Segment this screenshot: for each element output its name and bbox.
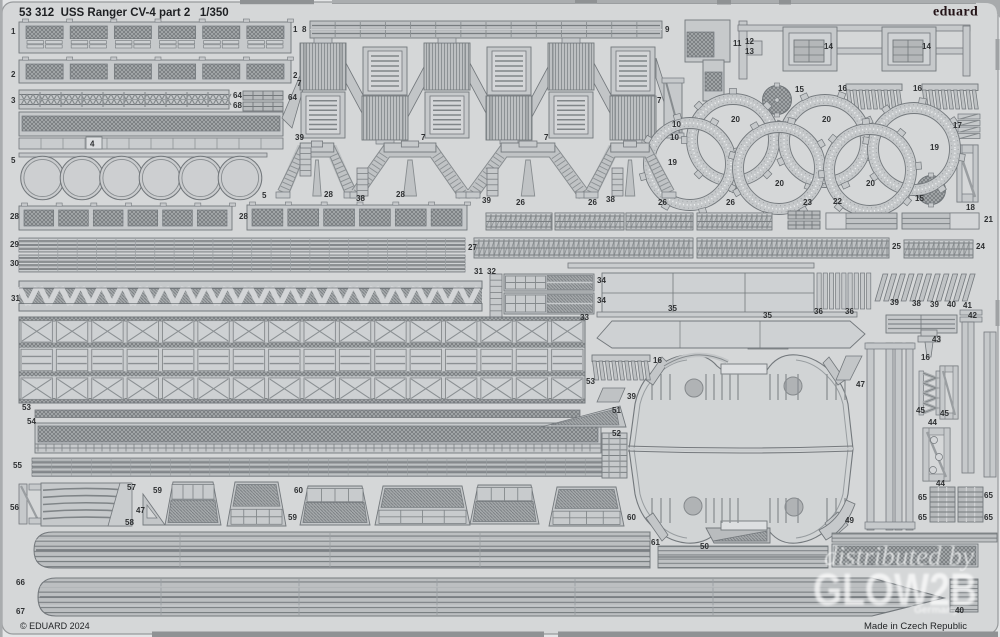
svg-text:36: 36 [845,307,854,316]
svg-text:10: 10 [670,133,679,142]
svg-text:19: 19 [930,143,939,152]
svg-text:53 312 USS Ranger CV-4 part 2: 53 312 USS Ranger CV-4 part 2 1/350 [19,7,229,19]
svg-text:59: 59 [153,486,162,495]
svg-text:47: 47 [136,506,145,515]
svg-text:56: 56 [10,503,19,512]
svg-text:39: 39 [627,392,636,401]
svg-text:42: 42 [968,311,977,320]
svg-text:28: 28 [396,190,405,199]
svg-text:45: 45 [916,406,925,415]
svg-text:31: 31 [11,294,20,303]
svg-text:45: 45 [940,409,949,418]
svg-text:19: 19 [668,158,677,167]
svg-text:3: 3 [11,96,16,105]
svg-text:55: 55 [13,461,22,470]
svg-text:64: 64 [288,93,297,102]
svg-text:65: 65 [984,491,993,500]
svg-text:15: 15 [795,85,804,94]
svg-text:12: 12 [745,37,754,46]
svg-text:7: 7 [421,133,426,142]
svg-text:53: 53 [586,377,595,386]
svg-text:26: 26 [588,198,597,207]
svg-text:20: 20 [822,115,831,124]
svg-text:8: 8 [302,25,307,34]
svg-text:13: 13 [745,47,754,56]
svg-text:49: 49 [845,516,854,525]
svg-text:53: 53 [22,403,31,412]
svg-text:28: 28 [10,212,19,221]
svg-text:38: 38 [606,195,615,204]
svg-text:64: 64 [233,91,242,100]
svg-text:39: 39 [482,196,491,205]
svg-text:4: 4 [90,140,95,149]
svg-text:27: 27 [468,243,477,252]
svg-text:7: 7 [297,79,302,88]
svg-text:40: 40 [955,606,964,615]
svg-text:16: 16 [921,353,930,362]
svg-text:65: 65 [984,513,993,522]
svg-text:35: 35 [668,304,677,313]
svg-text:67: 67 [16,607,25,616]
svg-text:1: 1 [293,25,298,34]
svg-text:33: 33 [580,313,589,322]
svg-text:20: 20 [866,179,875,188]
svg-text:39: 39 [295,133,304,142]
svg-text:58: 58 [125,518,134,527]
svg-text:44: 44 [936,479,945,488]
svg-text:28: 28 [324,190,333,199]
svg-text:54: 54 [27,417,36,426]
svg-text:38: 38 [356,194,365,203]
svg-text:41: 41 [963,301,972,310]
svg-text:65: 65 [918,493,927,502]
svg-text:61: 61 [651,538,660,547]
svg-text:51: 51 [612,406,621,415]
svg-text:32: 32 [487,267,496,276]
svg-text:Made in Czech Republic: Made in Czech Republic [864,621,967,632]
svg-text:28: 28 [239,212,248,221]
svg-text:11: 11 [733,39,742,48]
svg-text:21: 21 [984,215,993,224]
svg-text:1: 1 [11,27,16,36]
svg-text:39: 39 [890,298,899,307]
svg-text:16: 16 [913,84,922,93]
svg-text:10: 10 [672,120,681,129]
svg-text:2: 2 [11,70,16,79]
svg-text:30: 30 [10,259,19,268]
svg-text:60: 60 [627,513,636,522]
svg-text:7: 7 [657,96,662,105]
svg-text:44: 44 [928,418,937,427]
svg-text:17: 17 [953,121,962,130]
svg-text:Germany: Germany [914,604,958,616]
svg-text:34: 34 [597,276,606,285]
svg-text:31: 31 [474,267,483,276]
svg-text:16: 16 [653,356,662,365]
svg-text:14: 14 [922,42,931,51]
svg-text:47: 47 [856,380,865,389]
svg-text:40: 40 [947,300,956,309]
svg-text:7: 7 [544,133,549,142]
svg-text:43: 43 [932,335,941,344]
svg-text:35: 35 [763,311,772,320]
svg-text:22: 22 [833,197,842,206]
svg-text:14: 14 [824,42,833,51]
svg-text:24: 24 [976,242,985,251]
svg-text:59: 59 [288,513,297,522]
svg-text:16: 16 [838,84,847,93]
svg-text:15: 15 [915,194,924,203]
svg-text:9: 9 [665,25,670,34]
svg-text:eduard: eduard [933,5,978,20]
svg-text:29: 29 [10,240,19,249]
svg-text:26: 26 [516,198,525,207]
svg-text:57: 57 [127,483,136,492]
svg-text:65: 65 [918,513,927,522]
svg-text:5: 5 [262,191,267,200]
svg-text:52: 52 [612,429,621,438]
svg-text:26: 26 [726,198,735,207]
svg-text:34: 34 [597,296,606,305]
svg-text:20: 20 [731,115,740,124]
svg-text:25: 25 [892,242,901,251]
svg-text:50: 50 [700,542,709,551]
svg-text:60: 60 [294,486,303,495]
svg-text:39: 39 [930,300,939,309]
svg-text:20: 20 [775,179,784,188]
svg-text:18: 18 [966,203,975,212]
svg-text:© EDUARD 2024: © EDUARD 2024 [20,621,90,631]
svg-text:36: 36 [814,307,823,316]
svg-text:5: 5 [11,156,16,165]
svg-text:68: 68 [233,101,242,110]
svg-text:26: 26 [658,198,667,207]
svg-text:66: 66 [16,578,25,587]
svg-text:23: 23 [803,198,812,207]
svg-text:38: 38 [912,299,921,308]
